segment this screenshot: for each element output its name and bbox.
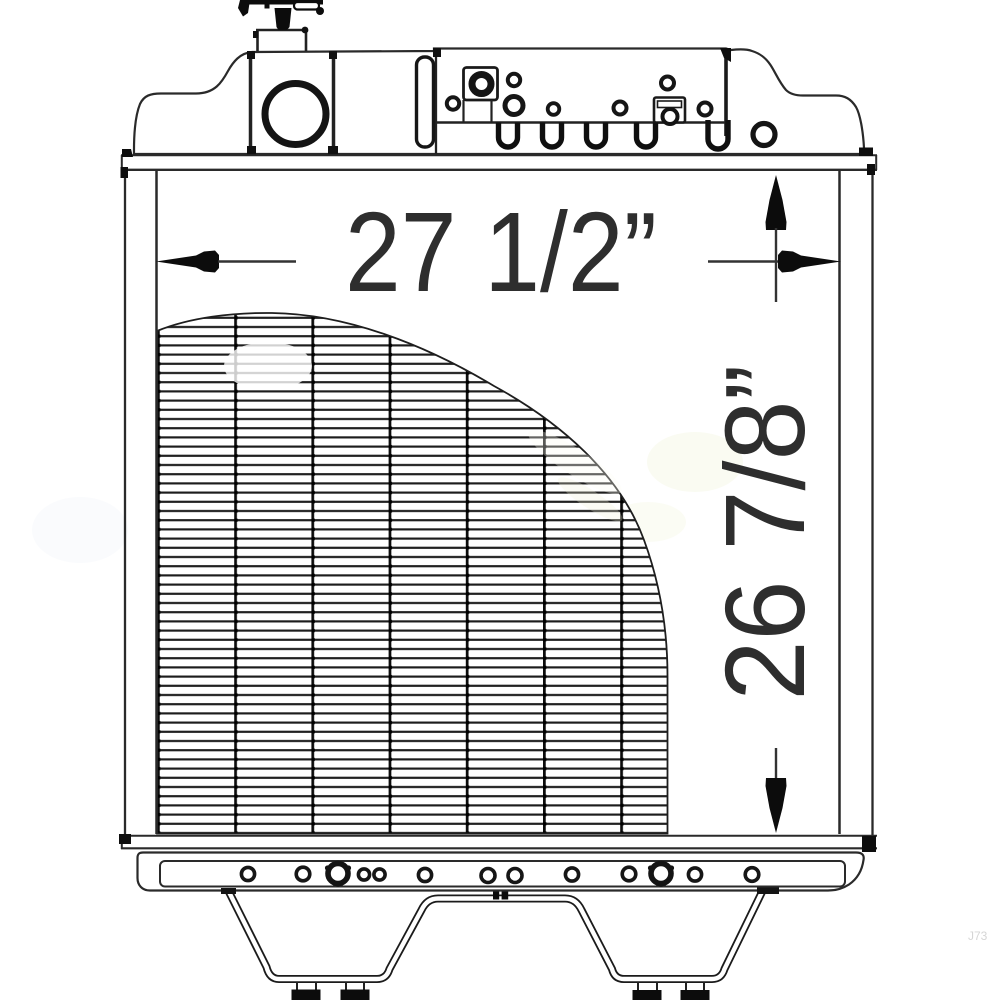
svg-text:27 1/2”: 27 1/2” <box>345 189 657 315</box>
svg-text:J73: J73 <box>968 929 988 943</box>
svg-text:26 7/8”: 26 7/8” <box>702 365 828 701</box>
